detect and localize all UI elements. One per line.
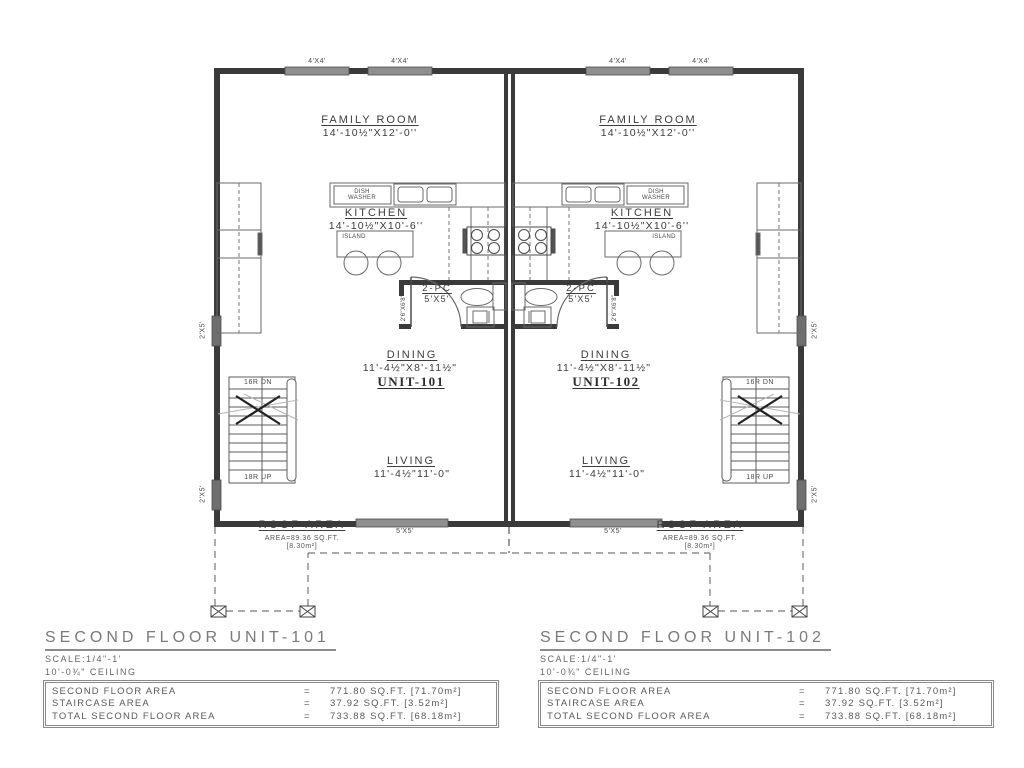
stair-handrail xyxy=(287,379,296,481)
unit-101-label: UNIT-101 xyxy=(377,374,444,390)
stool xyxy=(377,251,401,275)
window-label-top: 4'X4' xyxy=(692,58,710,65)
kitchen-label-102: KITCHEN xyxy=(611,207,673,219)
stool xyxy=(617,251,641,275)
equals-sign: = xyxy=(304,687,330,697)
ceiling-note-101: 10'-0¾" CEILING xyxy=(45,667,497,677)
dining-label-102: DINING xyxy=(581,349,632,361)
area-row-label: TOTAL SECOND FLOOR AREA xyxy=(547,712,799,722)
windows xyxy=(212,67,806,527)
family-room-label-102: FAMILY ROOM xyxy=(599,114,696,126)
unit-102-label: UNIT-102 xyxy=(572,374,639,390)
equals-sign: = xyxy=(304,699,330,709)
roof-area-metric-101: [8.30m²] xyxy=(287,543,317,550)
window-label-side: 2'X5' xyxy=(200,485,207,503)
roof-area-title-102: ROOF AREA xyxy=(657,519,744,531)
dining-label-101: DINING xyxy=(387,349,438,361)
island-label-101: ISLAND xyxy=(342,234,365,240)
family-room-label-101: FAMILY ROOM xyxy=(321,114,418,126)
equals-sign: = xyxy=(799,687,825,697)
bath-dims-101: 5'X5' xyxy=(424,294,449,304)
island-label-102: ISLAND xyxy=(652,234,675,240)
living-dims-102: 11'-4½"11'-0" xyxy=(569,468,645,480)
dishwasher-label-102: DISHWASHER xyxy=(642,189,670,201)
window-label-top: 4'X4' xyxy=(308,58,326,65)
area-row-label: TOTAL SECOND FLOOR AREA xyxy=(52,712,304,722)
dishwasher-line2: WASHER xyxy=(642,195,670,201)
scale-note-102: SCALE:1/4"-1' xyxy=(540,654,992,664)
dishwasher-line2: WASHER xyxy=(348,195,376,201)
area-row-label: SECOND FLOOR AREA xyxy=(52,687,304,697)
ceiling-note-102: 10'-0¾" CEILING xyxy=(540,667,992,677)
staircase-unit-102 xyxy=(720,377,800,483)
stove-102 xyxy=(513,227,555,255)
bath-door-size-102: 2'6"X6'8" xyxy=(612,295,618,322)
window-label-top: 4'X4' xyxy=(609,58,627,65)
window-label-side: 2'X5' xyxy=(200,321,207,339)
area-row-label: STAIRCASE AREA xyxy=(52,699,304,709)
living-label-101: LIVING xyxy=(387,455,435,467)
living-label-102: LIVING xyxy=(582,455,630,467)
bath-sink xyxy=(525,289,557,306)
area-row-value: 37.92 SQ.FT. [3.52m²] xyxy=(825,699,985,709)
floor-plan-sheet: 4'X4' 4'X4' FAMILY ROOM 14'-10½"X12'-0''… xyxy=(0,0,1024,768)
window-label-side: 2'X5' xyxy=(812,485,819,503)
area-row: TOTAL SECOND FLOOR AREA = 733.88 SQ.FT. … xyxy=(547,710,985,723)
kitchen-label-101: KITCHEN xyxy=(345,207,407,219)
bath-label-101: 2-PC xyxy=(422,283,452,294)
bath-door-size-101: 2'6"X6'8" xyxy=(401,295,407,322)
family-room-dims-101: 14'-10½"X12'-0'' xyxy=(323,127,418,139)
area-row-value: 37.92 SQ.FT. [3.52m²] xyxy=(330,699,490,709)
kitchen-unit-101 xyxy=(217,183,505,333)
equals-sign: = xyxy=(799,699,825,709)
stair-down-label-101: 16R DN xyxy=(244,379,272,386)
dining-dims-101: 11'-4½"X8'-11½" xyxy=(363,362,457,374)
living-dims-101: 11'-4½"11'-0" xyxy=(374,468,450,480)
area-row-value: 771.80 SQ.FT. [71.70m²] xyxy=(825,687,985,697)
area-row: STAIRCASE AREA = 37.92 SQ.FT. [3.52m²] xyxy=(52,698,490,711)
area-row-label: SECOND FLOOR AREA xyxy=(547,687,799,697)
family-room-dims-102: 14'-10½"X12'-0'' xyxy=(601,127,696,139)
stair-up-label-101: 18R UP xyxy=(244,474,272,481)
area-table-101: SECOND FLOOR AREA = 771.80 SQ.FT. [71.70… xyxy=(45,682,497,726)
sheet-title-102: SECOND FLOOR UNIT-102 xyxy=(540,629,831,651)
bathroom-unit-101 xyxy=(399,277,506,329)
fridge-counter-102 xyxy=(756,183,801,333)
window-label-bottom: 5'X5' xyxy=(396,528,414,535)
window-label-top: 4'X4' xyxy=(391,58,409,65)
area-row-value: 733.88 SQ.FT. [68.18m²] xyxy=(825,712,985,722)
roof-posts xyxy=(211,606,807,617)
area-row-value: 733.88 SQ.FT. [68.18m²] xyxy=(330,712,490,722)
kitchen-dims-102: 14'-10½"X10'-6'' xyxy=(595,220,690,232)
title-block-unit-102: SECOND FLOOR UNIT-102 SCALE:1/4"-1' 10'-… xyxy=(540,629,992,726)
roof-area-value-101: AREA=89.36 SQ.FT. xyxy=(265,535,340,542)
area-row: STAIRCASE AREA = 37.92 SQ.FT. [3.52m²] xyxy=(547,698,985,711)
kitchen-unit-102 xyxy=(513,183,801,333)
bath-dims-102: 5'X5' xyxy=(568,294,593,304)
window-label-bottom: 5'X5' xyxy=(604,528,622,535)
roof-area-title-101: ROOF AREA xyxy=(259,519,346,531)
title-block-unit-101: SECOND FLOOR UNIT-101 SCALE:1/4"-1' 10'-… xyxy=(45,629,497,726)
window-label-side: 2'X5' xyxy=(812,321,819,339)
bath-sink xyxy=(461,289,493,306)
equals-sign: = xyxy=(799,712,825,722)
stair-up-label-102: 18R UP xyxy=(746,474,774,481)
fridge-counter-101 xyxy=(217,183,262,333)
scale-note-101: SCALE:1/4"-1' xyxy=(45,654,497,664)
bath-label-102: 2-PC xyxy=(566,283,596,294)
sheet-title-101: SECOND FLOOR UNIT-101 xyxy=(45,629,336,651)
dishwasher-label-101: DISHWASHER xyxy=(348,189,376,201)
roof-area-metric-102: [8.30m²] xyxy=(685,543,715,550)
area-table-102: SECOND FLOOR AREA = 771.80 SQ.FT. [71.70… xyxy=(540,682,992,726)
area-row: SECOND FLOOR AREA = 771.80 SQ.FT. [71.70… xyxy=(52,685,490,698)
stair-down-label-102: 16R DN xyxy=(746,379,774,386)
stool xyxy=(650,251,674,275)
roof-area-value-102: AREA=89.36 SQ.FT. xyxy=(663,535,738,542)
area-row-value: 771.80 SQ.FT. [71.70m²] xyxy=(330,687,490,697)
exterior-walls xyxy=(217,71,801,524)
kitchen-dims-101: 14'-10½"X10'-6'' xyxy=(329,220,424,232)
area-row: SECOND FLOOR AREA = 771.80 SQ.FT. [71.70… xyxy=(547,685,985,698)
equals-sign: = xyxy=(304,712,330,722)
dining-dims-102: 11'-4½"X8'-11½" xyxy=(557,362,651,374)
stool xyxy=(344,251,368,275)
staircase-unit-101 xyxy=(218,377,298,483)
area-row: TOTAL SECOND FLOOR AREA = 733.88 SQ.FT. … xyxy=(52,710,490,723)
area-row-label: STAIRCASE AREA xyxy=(547,699,799,709)
stove-101 xyxy=(463,227,505,255)
stair-handrail xyxy=(722,379,731,481)
